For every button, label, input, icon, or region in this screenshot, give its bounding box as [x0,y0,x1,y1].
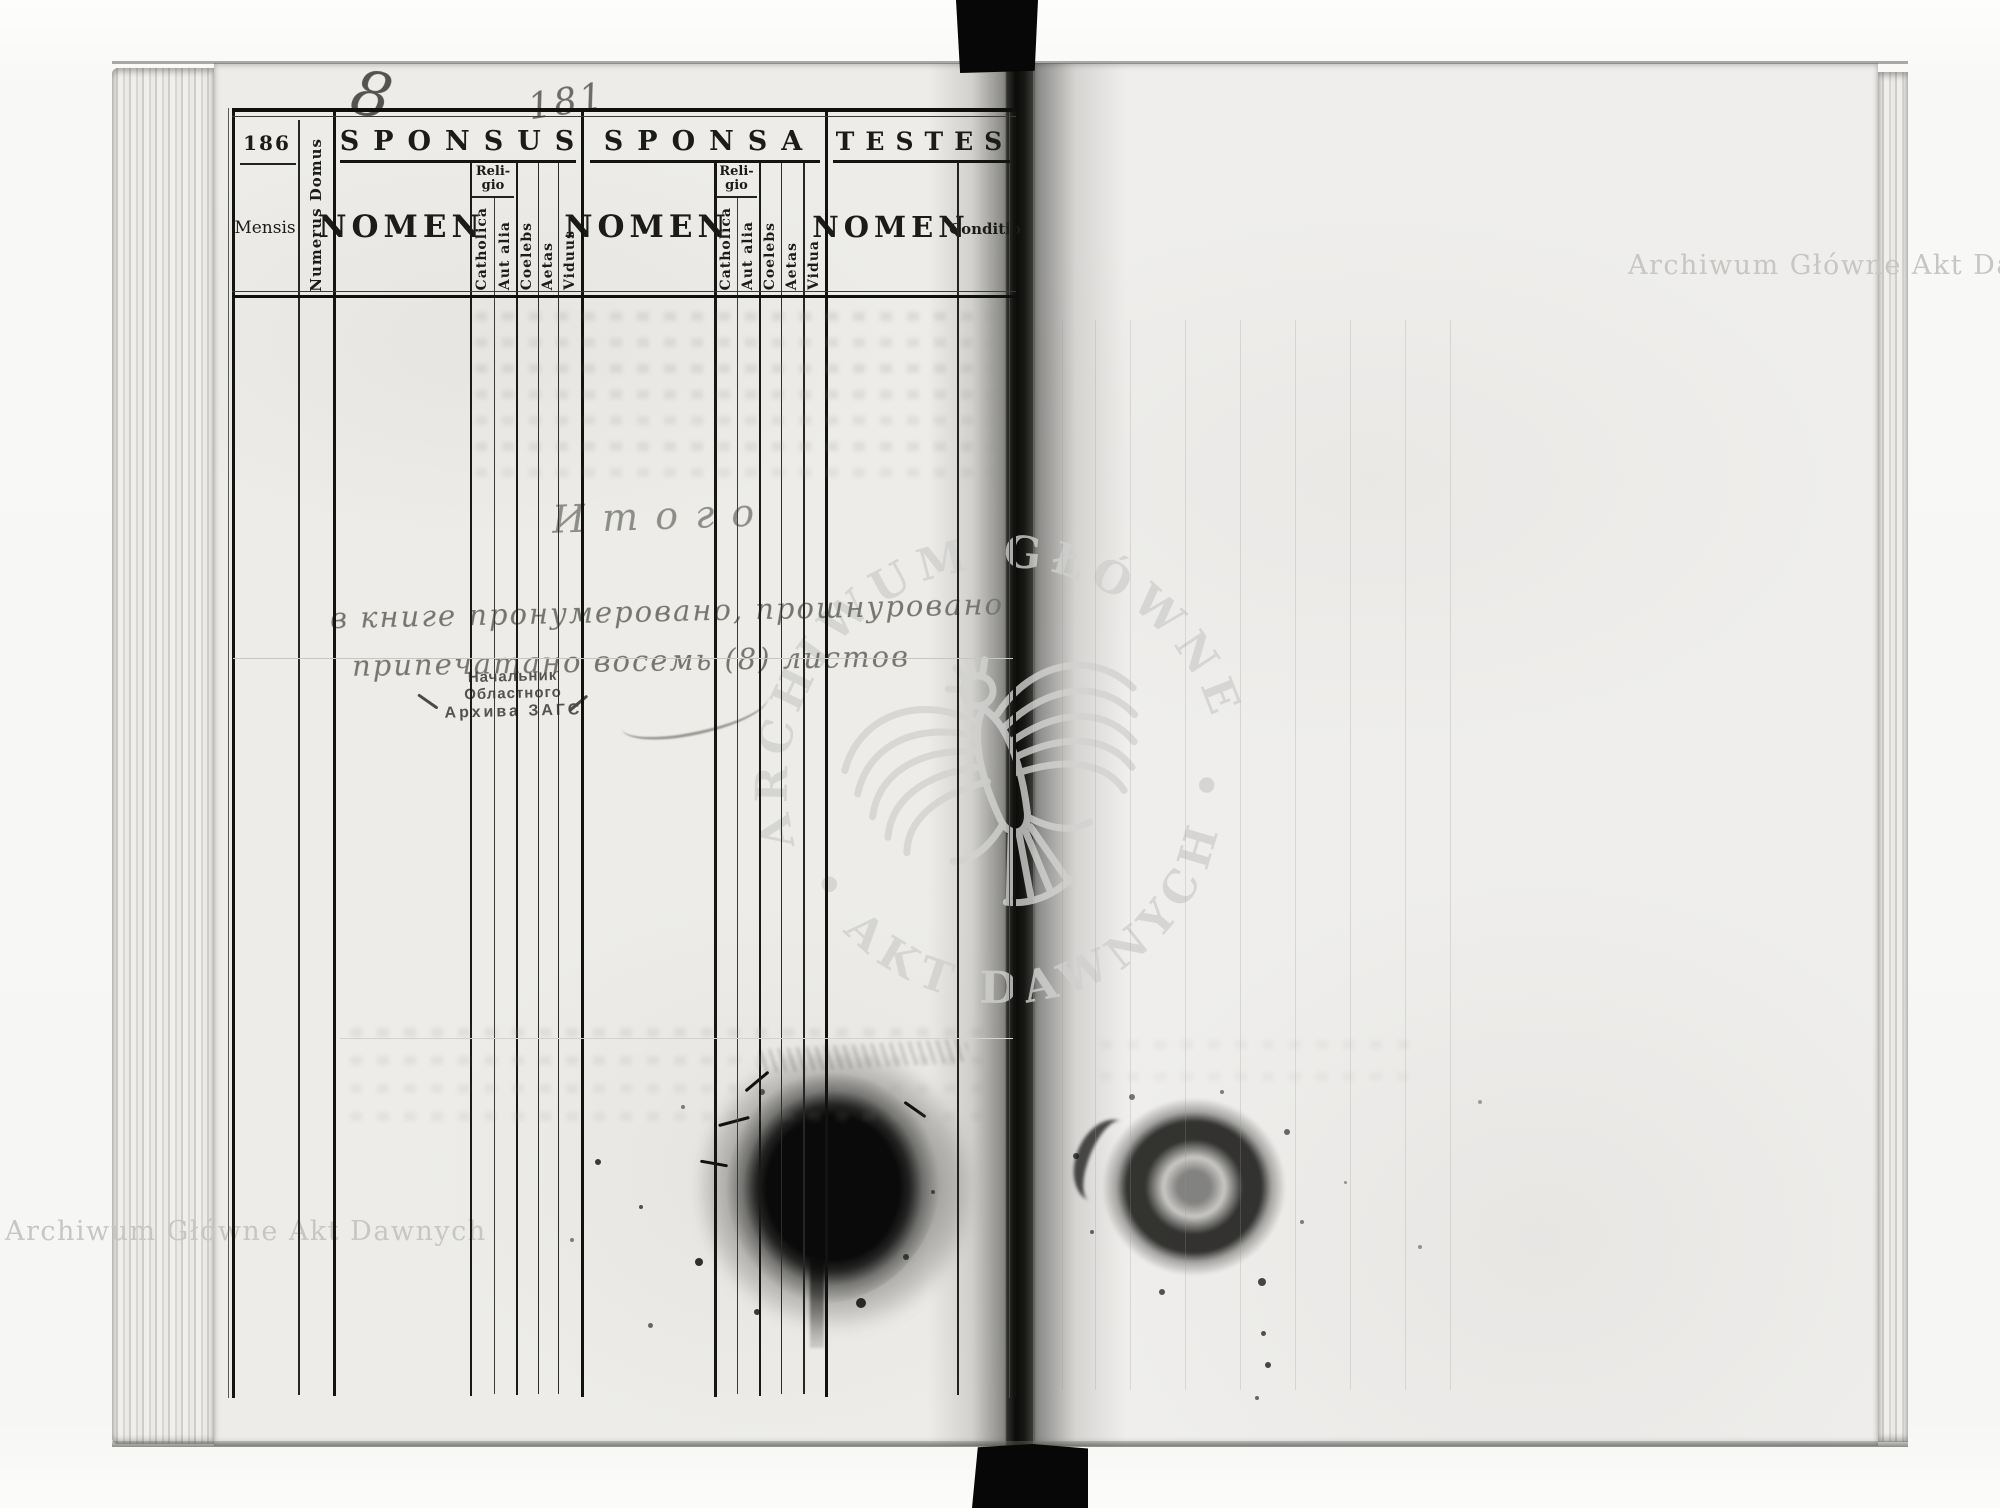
watermark-text-bottom-left: Archiwum Główne Akt Dawnych [5,1216,487,1247]
ink-splatter-dot [1300,1220,1304,1224]
table-column-rule [298,120,300,1395]
table-column-rule [825,112,828,1397]
watermark-text-top-right: Archiwum Główne Akt Dawnych [1628,250,2000,281]
svg-text:• AKT DAWNYCH •: • AKT DAWNYCH • [795,749,1286,1067]
bleedthrough-ghost-row [350,1112,990,1121]
ink-splatter-dot [1284,1129,1290,1135]
ink-splatter-dot [570,1238,574,1242]
ink-splatter-dot [1265,1362,1271,1368]
ink-splatter-dot [1418,1245,1422,1249]
aut-alia-label: Aut alia [740,221,756,290]
ink-splatter-dot [1478,1100,1482,1104]
ink-splatter-dot [695,1258,703,1266]
ink-run-smear [810,1258,824,1348]
religio-box-sponsa: Reli- gio [714,162,759,196]
ink-splatter-dot [856,1298,866,1308]
column-coelebs-sponsus: Coelebs [516,192,538,290]
ink-splatter-dot [1159,1289,1165,1295]
ink-splatter-dot [648,1323,653,1328]
handwritten-total: Итого [551,490,772,542]
ink-splatter-dot [1090,1230,1094,1234]
table-row-rule [833,160,1010,163]
table-row-rule [590,160,820,163]
ink-splatter-dot [903,1254,909,1260]
column-nomen-testes: NOMEN [825,203,957,251]
ink-splatter-dot [931,1190,935,1194]
column-aetas-sponsa: Aetas [781,192,803,290]
catholica-label: Catholica [718,207,734,290]
ink-splatter-dot [878,1148,882,1152]
column-conditio: Conditio [955,214,1015,244]
ink-splatter-dot [759,1089,765,1095]
bleedthrough-column-rule [1240,320,1241,1390]
ink-splatter-dot [639,1205,643,1209]
bleedthrough-ghost-row [475,390,1008,399]
bleedthrough-column-rule [1405,320,1406,1390]
ink-splatter-dot [1344,1181,1347,1184]
bleedthrough-column-rule [1130,320,1131,1390]
ink-splatter-dot [681,1105,685,1109]
table-column-rule [581,112,584,1397]
bleedthrough-ghost-row [475,312,1008,321]
aetas-label: Aetas [784,242,800,290]
table-column-rule [1013,108,1016,1398]
ink-splatter-dot [1073,1153,1079,1159]
bleedthrough-ghost-row [475,338,1008,347]
table-row-rule [232,291,1016,292]
bleedthrough-ghost-row [1100,1072,1420,1081]
table-column-rule [470,160,472,1396]
table-column-rule [737,196,738,1394]
table-row-rule [232,116,1016,117]
table-row-rule [716,196,757,198]
bleedthrough-ghost-row [1100,1040,1420,1049]
column-aut-alia-sponsa: Aut alia [737,192,759,290]
column-aetas-sponsus: Aetas [538,192,558,290]
religio-line1: Reli- [476,165,510,179]
column-catholica-sponsa: Catholica [714,192,737,290]
ink-splatter-dot [595,1159,601,1165]
bleedthrough-ghost-row [475,364,1008,373]
table-row-rule [472,196,514,198]
bleedthrough-ghost-row [475,442,1008,451]
table-row-rule [232,108,1016,112]
ink-splatter-dot [1258,1278,1266,1286]
table-column-rule [228,108,229,1398]
column-catholica-sponsus: Catholica [470,192,494,290]
seal-bottom-arc-text: • AKT DAWNYCH • [795,749,1286,1067]
book-strap-top [956,0,1038,73]
ink-splatter-dot [1129,1094,1135,1100]
book-strap-bottom [972,1444,1088,1508]
bleedthrough-ghost-row [475,468,1008,477]
column-nomen-sponsus: NOMEN [333,203,470,251]
column-aut-alia-sponsus: Aut alia [494,192,516,290]
aut-alia-label: Aut alia [497,221,513,290]
catholica-label: Catholica [474,207,490,290]
page-number: 186 [236,130,298,156]
ink-splatter-dot [1261,1331,1266,1336]
section-header-sponsa: SPONSA [581,124,825,158]
ink-splatter-dot [1220,1090,1224,1094]
bleedthrough-column-rule [1062,320,1063,1390]
coelebs-label: Coelebs [519,222,535,290]
bleedthrough-column-rule [1185,320,1186,1390]
table-row-rule [340,1038,1013,1039]
bleedthrough-ghost-row [350,1084,990,1093]
archive-seal-watermark: ARCHIWUM GŁÓWNE • AKT DAWNYCH • [723,503,1287,1067]
table-row-rule [240,163,296,165]
bleedthrough-column-rule [1295,320,1296,1390]
religio-box-sponsus: Reli- gio [470,162,516,196]
table-row-rule [232,295,1016,298]
ink-splatter-dot [1255,1396,1259,1400]
vidua-label: Vidua [806,240,822,290]
column-nomen-sponsa: NOMEN [581,203,714,251]
aetas-label: Aetas [540,242,556,290]
bleedthrough-column-rule [1350,320,1351,1390]
table-row-rule [340,160,576,163]
bleedthrough-ghost-row [350,1056,990,1065]
religio-line1: Reli- [719,165,753,179]
column-mensis: Mensis [232,208,298,248]
table-row-rule [233,658,1013,659]
stamp-line-1: Начальник Областного [437,666,588,704]
archive-stamp: Начальник Областного Архива ЗАГС [437,666,588,723]
bleedthrough-column-rule [1095,320,1096,1390]
table-column-rule [1009,108,1010,1398]
table-column-rule [494,196,495,1394]
ink-splatter-dot [754,1309,760,1315]
coelebs-label: Coelebs [762,222,778,290]
scanned-register-photo: ARCHIWUM GŁÓWNE • AKT DAWNYCH • [0,0,2000,1508]
column-coelebs-sponsa: Coelebs [759,192,781,290]
bleedthrough-ghost-row [475,416,1008,425]
section-header-testes: TESTES [825,124,1013,158]
bleedthrough-ghost-row [350,1028,990,1037]
bleedthrough-column-rule [1450,320,1451,1390]
table-column-rule [333,112,336,1396]
table-column-rule [232,108,235,1398]
